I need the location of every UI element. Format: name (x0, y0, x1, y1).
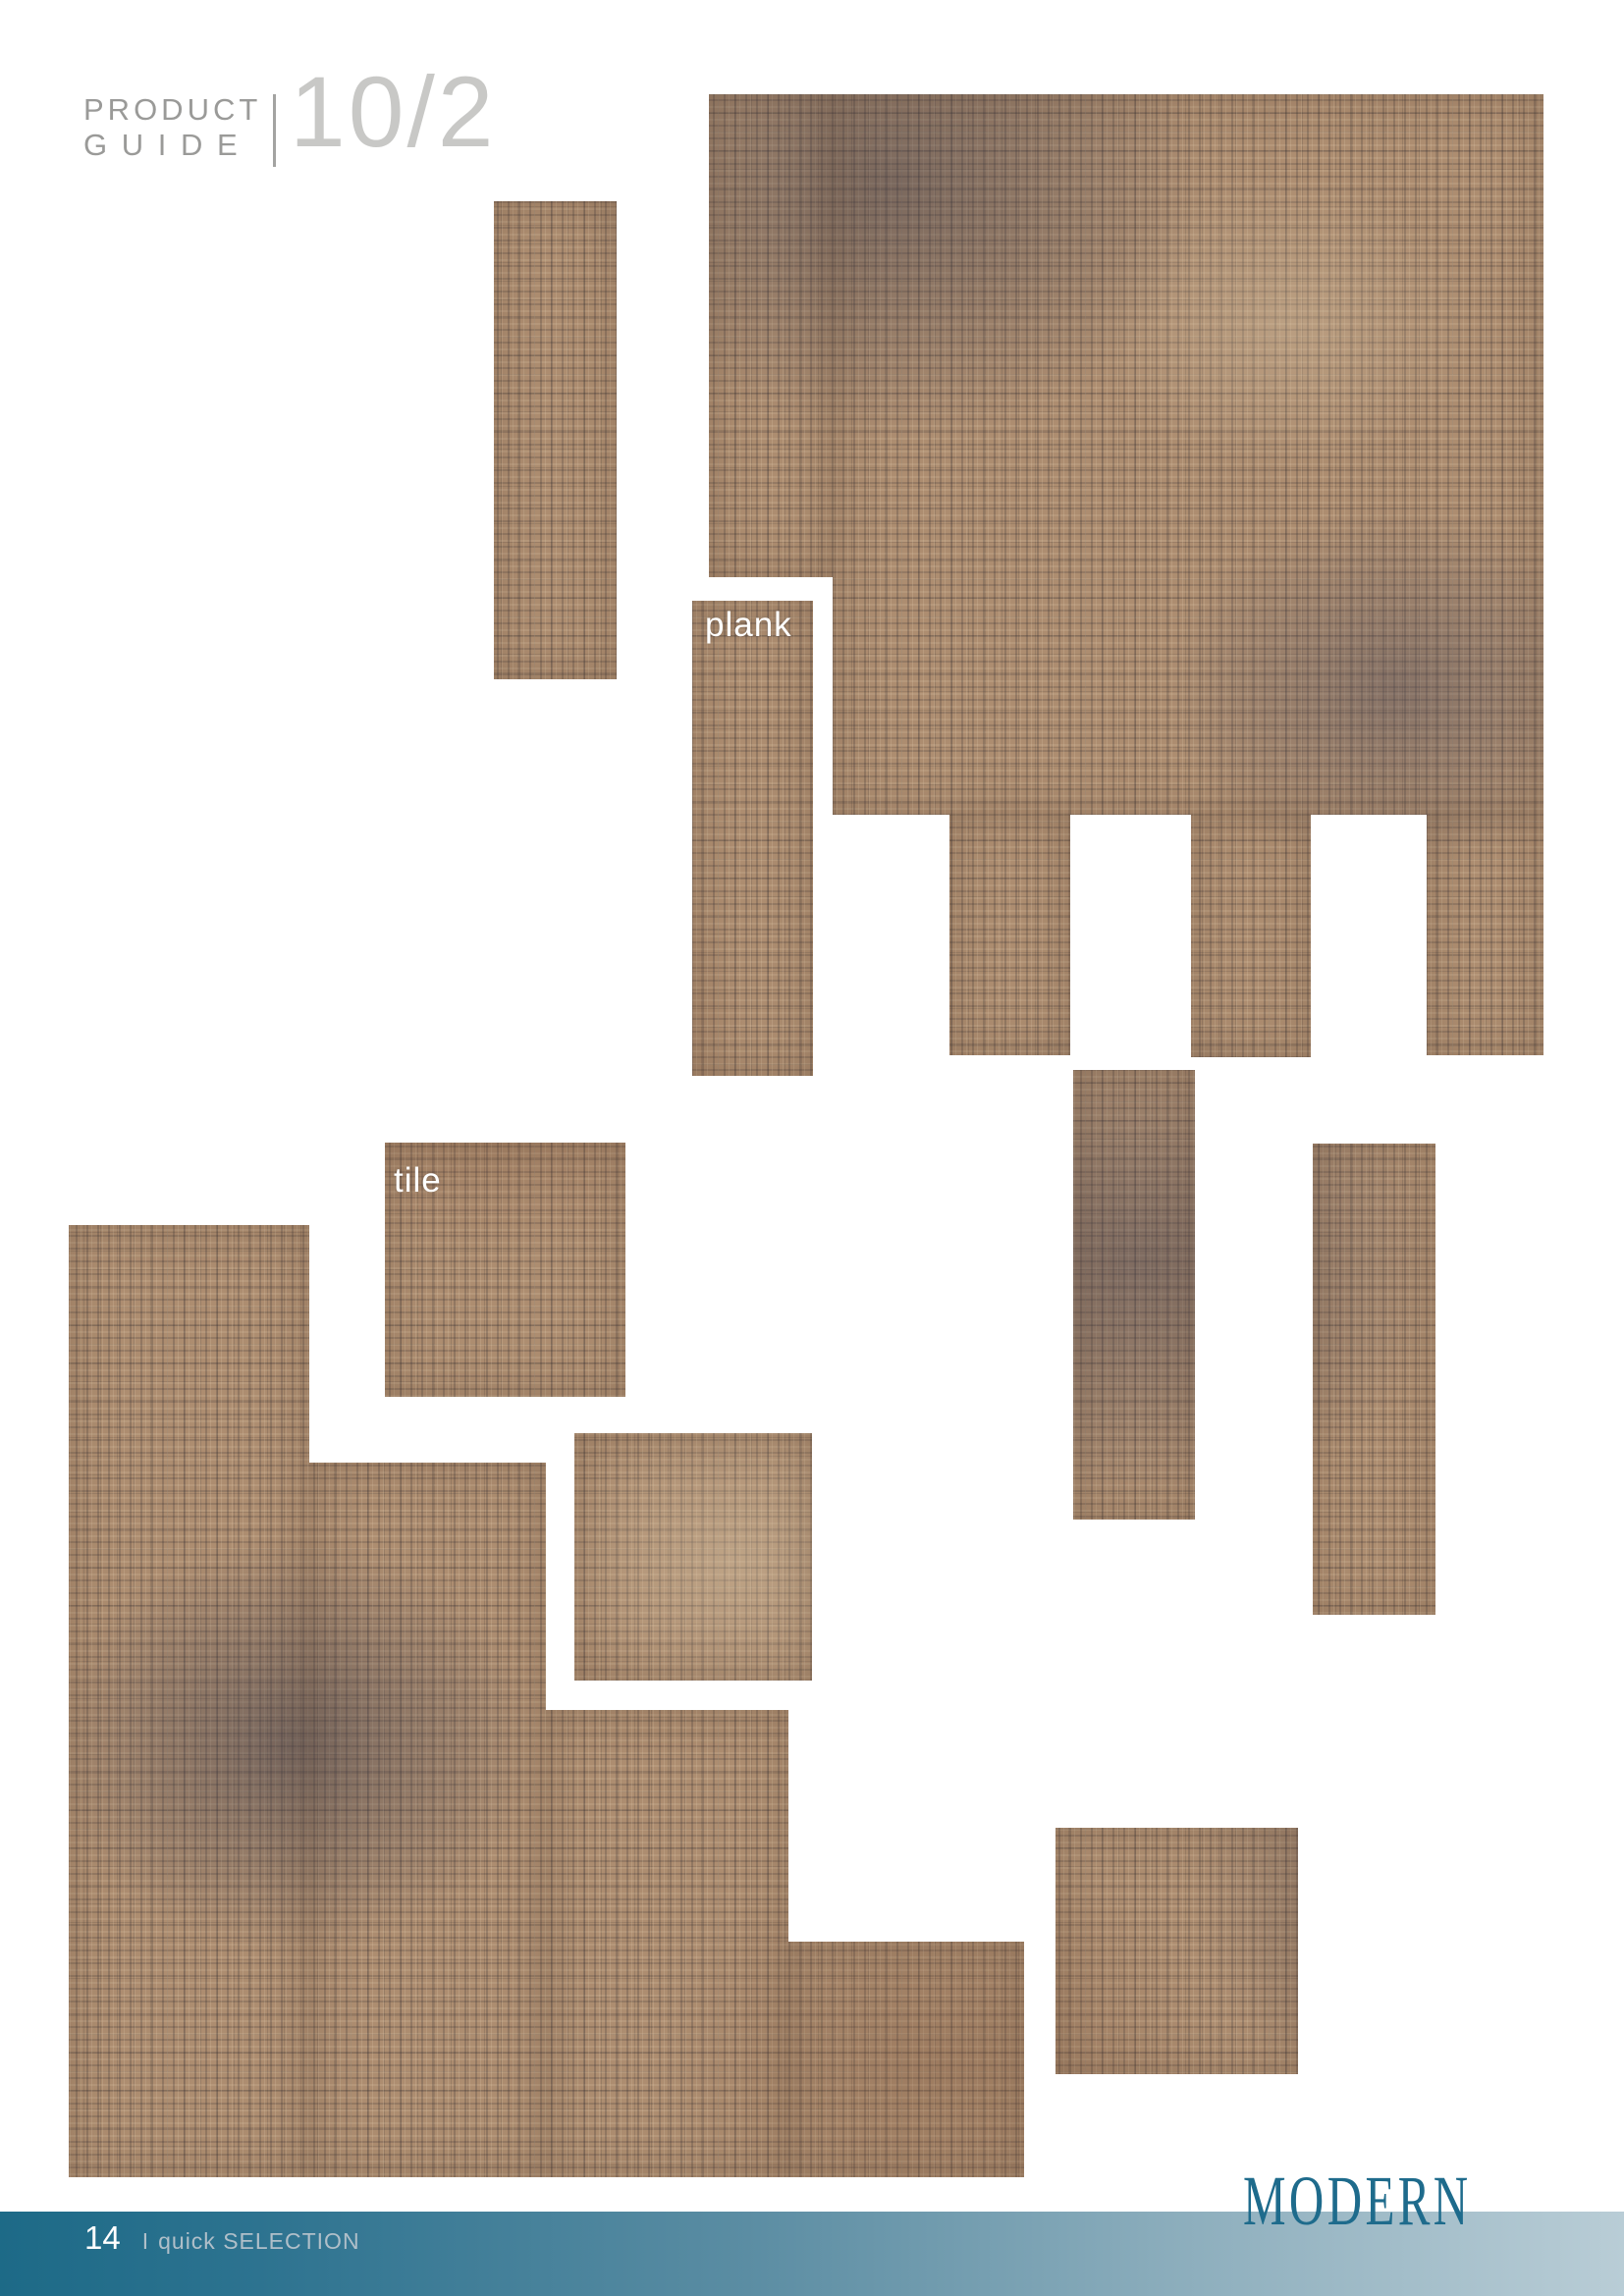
plank-block-tooth-2 (1191, 813, 1311, 1057)
page-number: 14 (84, 2219, 121, 2256)
brand-logo: MODERN (1243, 2165, 1472, 2236)
tile-staircase-step-1 (69, 1225, 309, 2177)
footer-left: 14Iquick SELECTION (84, 2219, 360, 2257)
footer-section-title: quick SELECTION (158, 2228, 359, 2254)
tile-staircase-step-2 (309, 1463, 546, 2177)
issue-number: 10/2 (290, 61, 497, 163)
footer-separator: I (142, 2228, 148, 2254)
plank-block-tooth-right (1427, 813, 1543, 1055)
kicker: PRODUCT G U I D E (83, 92, 261, 163)
plank-block-left-column (709, 94, 833, 577)
plank-swatch-mid-right-1 (1073, 1070, 1195, 1520)
tile-staircase-step-4 (788, 1942, 1024, 2177)
catalog-page: PRODUCT G U I D E 10/2 plank tile 14Iqui… (0, 0, 1624, 2296)
plank-label: plank (705, 607, 792, 644)
header-divider (273, 94, 276, 167)
kicker-line-guide: G U I D E (83, 128, 261, 163)
kicker-line-product: PRODUCT (83, 92, 261, 128)
plank-swatch-floating (494, 201, 617, 679)
tile-staircase-step-3 (546, 1710, 788, 2177)
plank-swatch-labeled (692, 601, 813, 1076)
plank-block-main (833, 94, 1543, 815)
tile-swatch-middle (574, 1433, 812, 1681)
tile-swatch-bottom-right (1056, 1828, 1298, 2074)
plank-swatch-mid-right-2 (1313, 1144, 1435, 1615)
tile-label: tile (394, 1162, 442, 1200)
plank-block-tooth-1 (949, 813, 1070, 1055)
